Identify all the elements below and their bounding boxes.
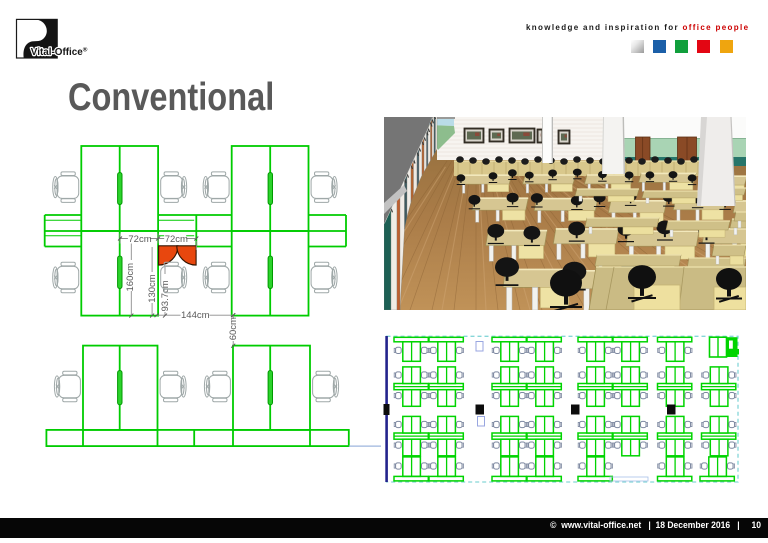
svg-text:Vital-Office®: Vital-Office® <box>31 46 88 59</box>
svg-text:72cm: 72cm <box>128 234 151 245</box>
svg-text:160cm: 160cm <box>125 263 136 292</box>
svg-text:72cm: 72cm <box>165 234 188 245</box>
svg-text:60cm: 60cm <box>228 317 239 340</box>
svg-text:144cm: 144cm <box>181 310 210 321</box>
svg-text:130cm: 130cm <box>147 274 158 303</box>
svg-text:93.7cm: 93.7cm <box>160 280 171 311</box>
